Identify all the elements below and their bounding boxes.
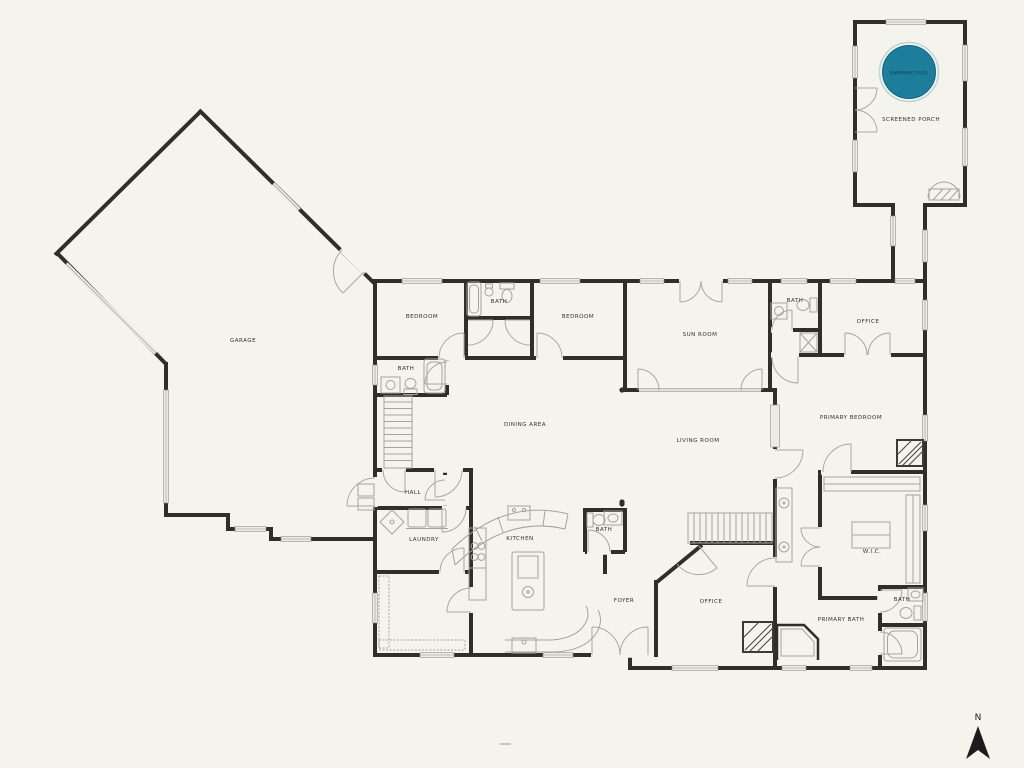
label-bedroom-2: BEDROOM <box>562 314 594 320</box>
label-jack-and-jill-bath: BATH <box>491 299 508 305</box>
label-powder-bath: BATH <box>596 527 613 533</box>
label-primary-small-bath: BATH <box>894 597 911 603</box>
swimming-pool: SWIMMING POOL <box>880 43 939 102</box>
floor-plan: SWIMMING POOL GARAGE BEDROOM BATH BEDROO… <box>0 0 1024 768</box>
north-label: N <box>975 713 982 723</box>
label-hall-bath: BATH <box>398 366 415 372</box>
label-kitchen: KITCHEN <box>506 536 533 542</box>
pool-label: SWIMMING POOL <box>890 71 929 76</box>
living-room-niche <box>771 405 780 447</box>
label-office-top-bath: BATH <box>787 298 804 304</box>
label-walk-in-closet: W.I.C. <box>863 549 881 555</box>
label-laundry: LAUNDRY <box>409 537 439 543</box>
label-dining-area: DINING AREA <box>504 422 546 428</box>
label-office-top: OFFICE <box>857 319 880 325</box>
label-foyer: FOYER <box>614 598 634 604</box>
label-primary-bath: PRIMARY BATH <box>818 617 865 623</box>
label-screened-porch: SCREENED PORCH <box>882 117 940 123</box>
label-bedroom-1: BEDROOM <box>406 314 438 320</box>
label-sun-room: SUN ROOM <box>683 332 718 338</box>
label-primary-bedroom: PRIMARY BEDROOM <box>820 415 882 421</box>
label-living-room: LIVING ROOM <box>676 438 719 444</box>
label-office-bottom: OFFICE <box>700 599 723 605</box>
label-hall: HALL <box>405 490 421 496</box>
label-garage: GARAGE <box>230 338 256 344</box>
